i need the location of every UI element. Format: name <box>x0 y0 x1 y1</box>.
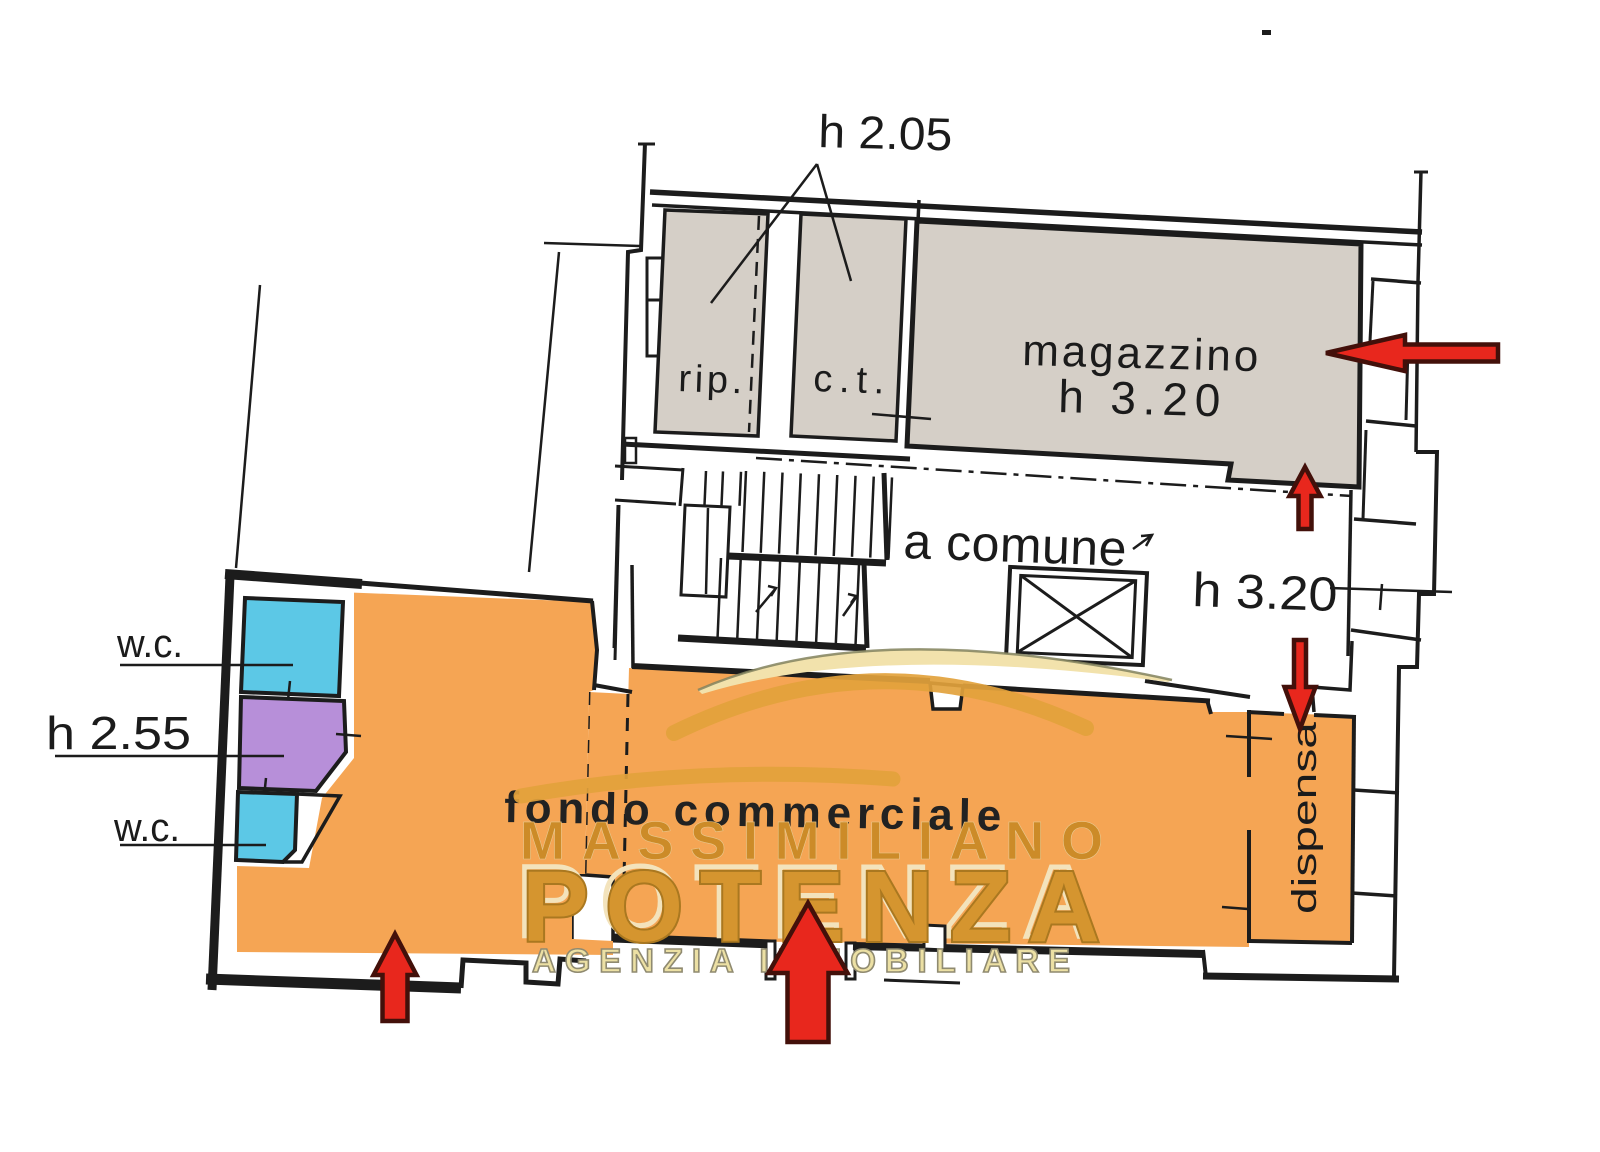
svg-text:h 2.55: h 2.55 <box>46 707 191 759</box>
svg-text:rip.: rip. <box>678 358 743 402</box>
svg-text:h 3.20: h 3.20 <box>1192 564 1339 622</box>
svg-text:c.t.: c.t. <box>813 358 885 402</box>
svg-text:w.c.: w.c. <box>116 622 183 666</box>
svg-text:a comune: a comune <box>903 513 1128 577</box>
svg-text:dispensa: dispensa <box>1286 722 1324 914</box>
svg-text:h 2.05: h 2.05 <box>818 105 953 160</box>
svg-text:w.c.: w.c. <box>113 806 180 850</box>
svg-text:magazzino: magazzino <box>1022 326 1259 381</box>
